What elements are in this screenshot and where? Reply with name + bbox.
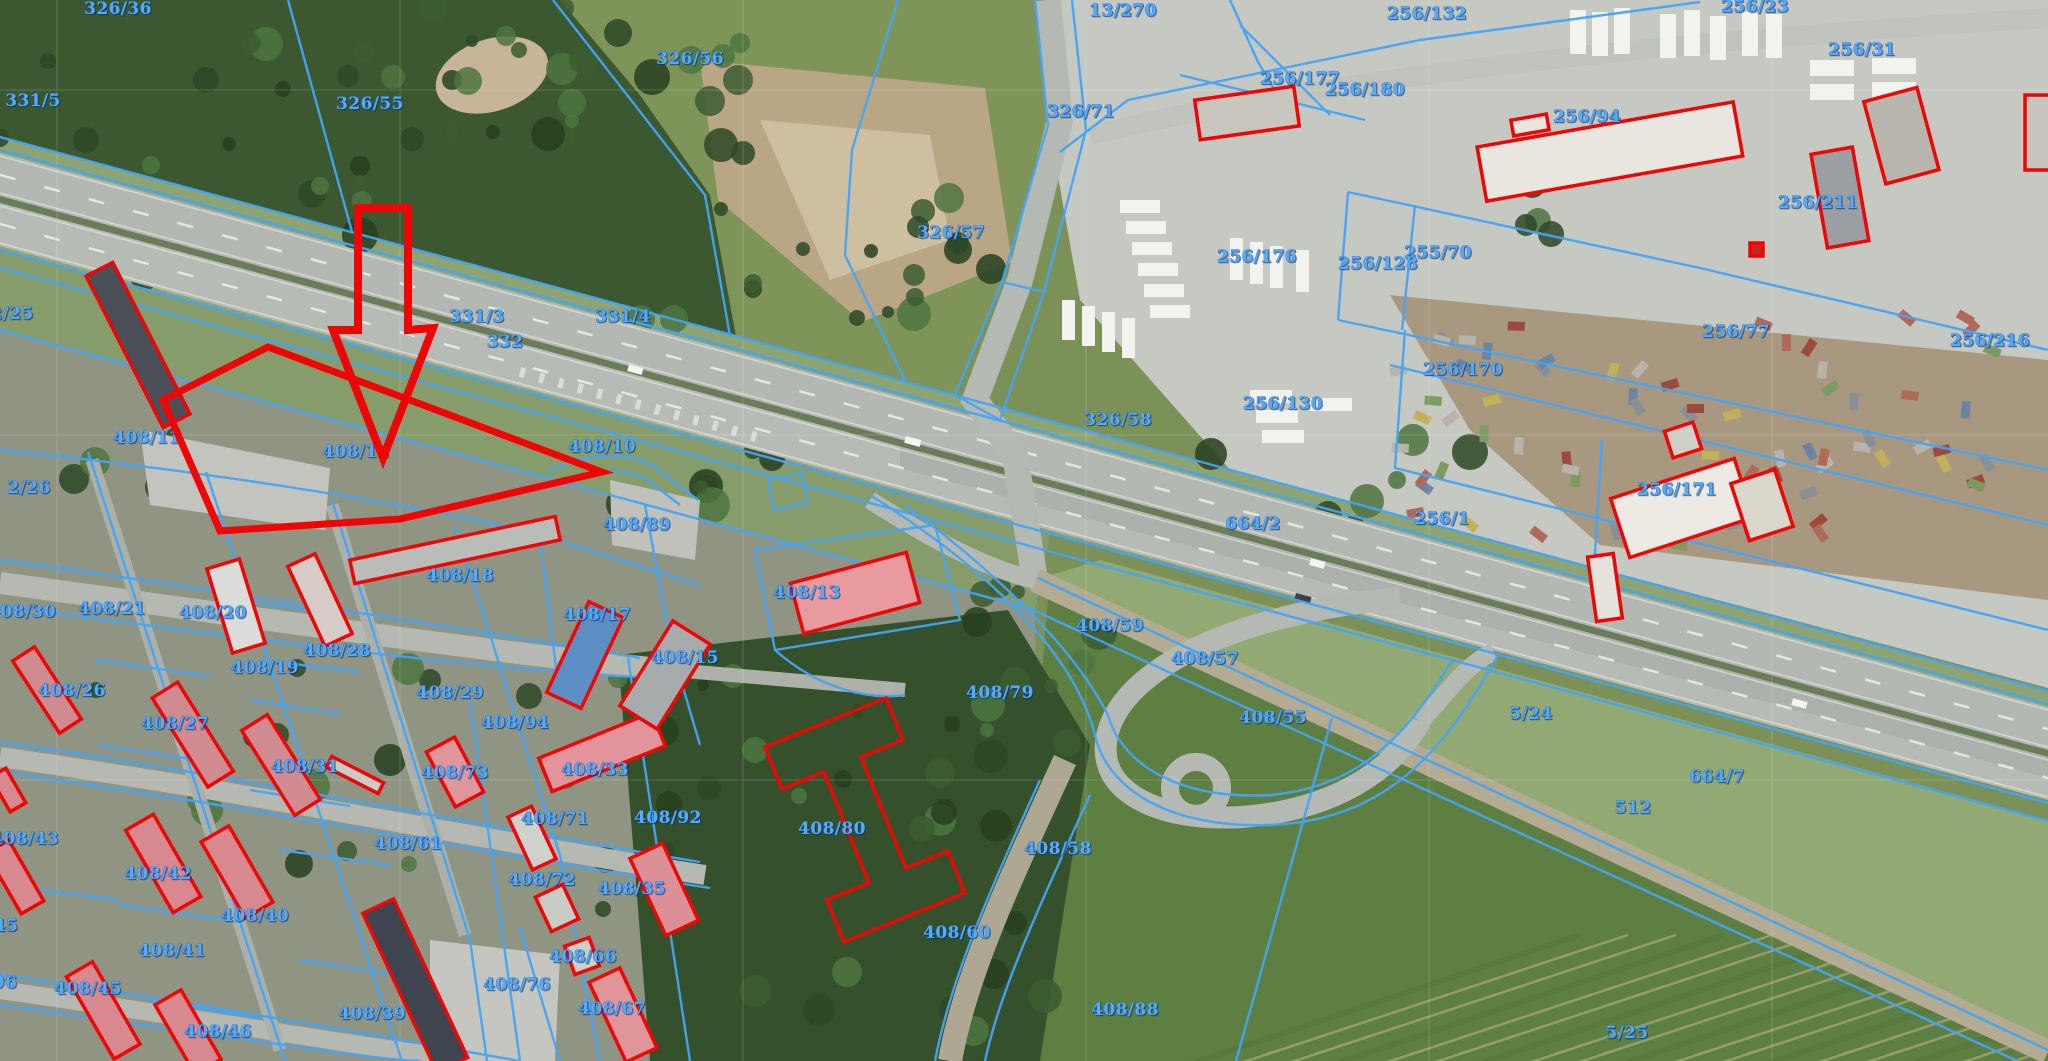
parcel-label: 256/23 xyxy=(1721,0,1789,17)
parcel-label: 408/21 xyxy=(78,599,146,619)
parcel-label: 256/128 xyxy=(1338,254,1418,274)
parcel-label: 408/17 xyxy=(563,605,631,625)
parcel-label: 331/3 xyxy=(449,307,505,327)
parcel-label: 256/211 xyxy=(1778,193,1858,213)
parcel-label: 408/88 xyxy=(1091,1000,1159,1020)
parcel-label: 2/26 xyxy=(7,478,50,498)
parcel-label: 408/41 xyxy=(138,941,206,961)
parcel-label: 256/171 xyxy=(1637,480,1717,500)
parcel-label: 408/28 xyxy=(303,641,371,661)
parcel-label: 256/176 xyxy=(1217,247,1297,267)
parcel-label: 408/13 xyxy=(773,583,841,603)
parcel-label: 331/4 xyxy=(595,307,651,327)
parcel-label: 408/29 xyxy=(416,683,484,703)
parcel-label: 408/72 xyxy=(508,870,576,890)
parcel-label: 408/20 xyxy=(179,603,247,623)
parcel-label: 408/67 xyxy=(578,999,646,1019)
parcel-label: 512 xyxy=(1615,798,1652,818)
parcel-label: 664/2 xyxy=(1225,514,1281,534)
parcel-label: 408/45 xyxy=(54,979,122,999)
parcel-label: 408/40 xyxy=(221,906,289,926)
parcel-label: 408/27 xyxy=(141,714,209,734)
parcel-label: 408/94 xyxy=(481,713,549,733)
parcel-label: 45 xyxy=(0,916,18,936)
parcel-label: 408/60 xyxy=(923,923,991,943)
parcel-label: 256/180 xyxy=(1325,80,1405,100)
parcel-label: 408/79 xyxy=(966,683,1034,703)
parcel-label: 408/30 xyxy=(0,602,56,622)
parcel-label: 408/46 xyxy=(184,1022,252,1042)
parcel-label: 13/270 xyxy=(1089,1,1157,21)
parcel-label: 408/61 xyxy=(374,834,442,854)
parcel-label: 408/33 xyxy=(561,760,629,780)
parcel-label: 408/26 xyxy=(38,681,106,701)
parcel-label: 408/76 xyxy=(483,975,551,995)
parcel-label: 326/55 xyxy=(336,94,404,114)
parcel-label: 326/56 xyxy=(656,49,724,69)
parcel-label: 256/216 xyxy=(1950,331,2030,351)
parcel-label: 256/1 xyxy=(1414,509,1470,529)
parcel-label: 408/58 xyxy=(1024,839,1092,859)
parcel-label: 408/55 xyxy=(1239,708,1307,728)
parcel-label: 331/5 xyxy=(5,91,61,111)
parcel-label: 5/25 xyxy=(1605,1023,1648,1043)
parcel-label: 408/89 xyxy=(603,515,671,535)
parcel-label: 256/31 xyxy=(1828,40,1896,60)
parcel-label: 256/77 xyxy=(1702,322,1770,342)
parcel-label: 408/31 xyxy=(271,757,339,777)
parcel-label: 408/11 xyxy=(113,428,181,448)
parcel-label: 256/170 xyxy=(1423,360,1503,380)
parcel-label: 326/71 xyxy=(1047,102,1115,122)
parcel-label: 408/59 xyxy=(1076,616,1144,636)
parcel-label: 256/130 xyxy=(1243,394,1323,414)
parcel-label: 408/42 xyxy=(124,864,192,884)
parcel-label: 408/19 xyxy=(231,658,299,678)
parcel-label: 96 xyxy=(0,973,17,993)
parcel-label: 408/73 xyxy=(421,763,489,783)
parcel-label: 408/71 xyxy=(521,809,589,829)
parcel-label: 326/57 xyxy=(917,223,985,243)
parcel-label: 408/57 xyxy=(1171,649,1239,669)
parcel-label: 332 xyxy=(487,332,524,352)
parcel-label: 408/35 xyxy=(598,879,666,899)
parcel-label: 408/15 xyxy=(651,648,719,668)
parcel-label: 256/94 xyxy=(1553,107,1621,127)
parcel-label: 326/36 xyxy=(84,0,152,19)
parcel-label: 2/25 xyxy=(0,304,34,324)
parcel-label: 408/92 xyxy=(634,808,702,828)
parcel-label: 256/132 xyxy=(1387,4,1467,24)
parcel-label: 326/58 xyxy=(1084,410,1152,430)
parcel-label: 408/18 xyxy=(426,566,494,586)
cadastral-map-view[interactable]: 331/5326/36326/55326/56326/57326/71326/5… xyxy=(0,0,2048,1061)
map-canvas[interactable]: 331/5326/36326/55326/56326/57326/71326/5… xyxy=(0,0,2048,1061)
parcel-label: 408/43 xyxy=(0,829,59,849)
parcel-label: 664/7 xyxy=(1689,767,1745,787)
parcel-label: 408/39 xyxy=(338,1004,406,1024)
parcel-label: 5/24 xyxy=(1509,704,1552,724)
parcel-label: 408/80 xyxy=(798,819,866,839)
parcel-label: 408/10 xyxy=(568,437,636,457)
parcel-label: 408/66 xyxy=(549,947,617,967)
